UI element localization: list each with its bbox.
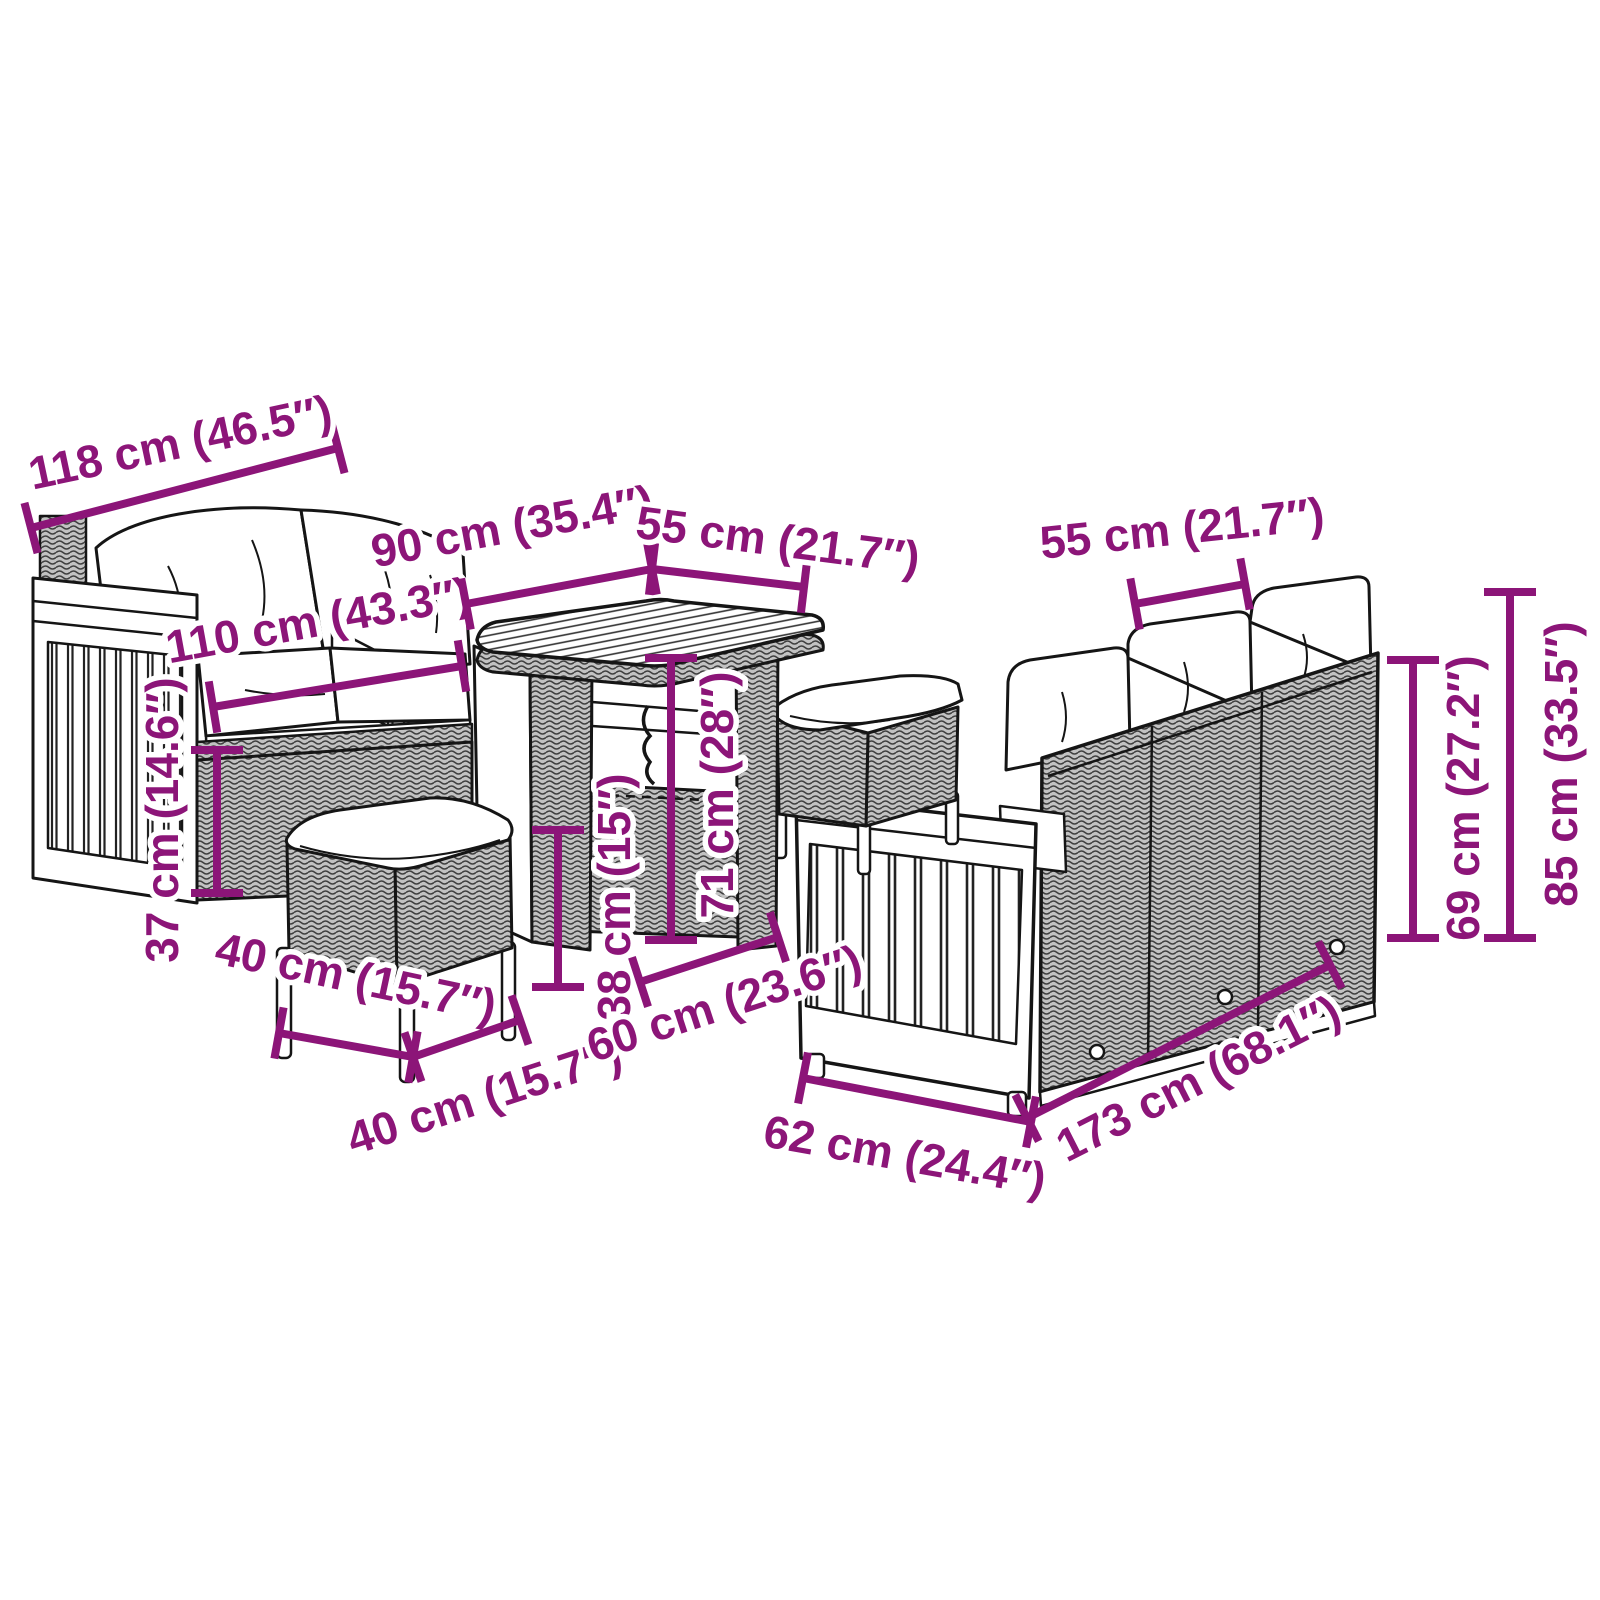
stool-back-body-side: [866, 707, 958, 826]
dimension-line: [279, 1033, 413, 1057]
dimension-line: [1130, 578, 1139, 629]
dimension-label-table-height: 71 cm (28″): [691, 671, 743, 918]
dimension-sofa3-back-height: 69 cm (27.2″): [1387, 655, 1489, 940]
dimension-label-sofa3-seat-width: 55 cm (21.7″): [1037, 487, 1326, 569]
dimension-line: [798, 1052, 808, 1103]
dimension-line: [652, 569, 804, 587]
diagram-canvas: 118 cm (46.5″)110 cm (43.3″)90 cm (35.4″…: [0, 0, 1600, 1600]
dimension-line: [1135, 584, 1245, 604]
dimension-label-table-length: 90 cm (35.4″): [367, 475, 657, 578]
dimension-line: [466, 569, 652, 604]
dimension-table-width: 55 cm (21.7″): [633, 496, 923, 613]
sofa3-back-cushion-3: [1250, 577, 1371, 672]
dimension-sofa3-total-height: 85 cm (33.5″): [1484, 592, 1587, 938]
dimension-label-stool-height: 38 cm (15″): [588, 773, 640, 1020]
side-table: [474, 600, 823, 951]
dimension-label-sofa3-total-height: 85 cm (33.5″): [1535, 621, 1587, 906]
furniture-dimension-diagram: 118 cm (46.5″)110 cm (43.3″)90 cm (35.4″…: [0, 0, 1600, 1600]
dimension-label-sofa2-seat-height: 37 cm (14.6″): [136, 677, 188, 962]
dimension-line: [1240, 558, 1249, 609]
dimension-label-sofa3-back-height: 69 cm (27.2″): [1437, 655, 1489, 940]
dimension-label-sofa2-overall-width: 118 cm (46.5″): [24, 385, 337, 500]
